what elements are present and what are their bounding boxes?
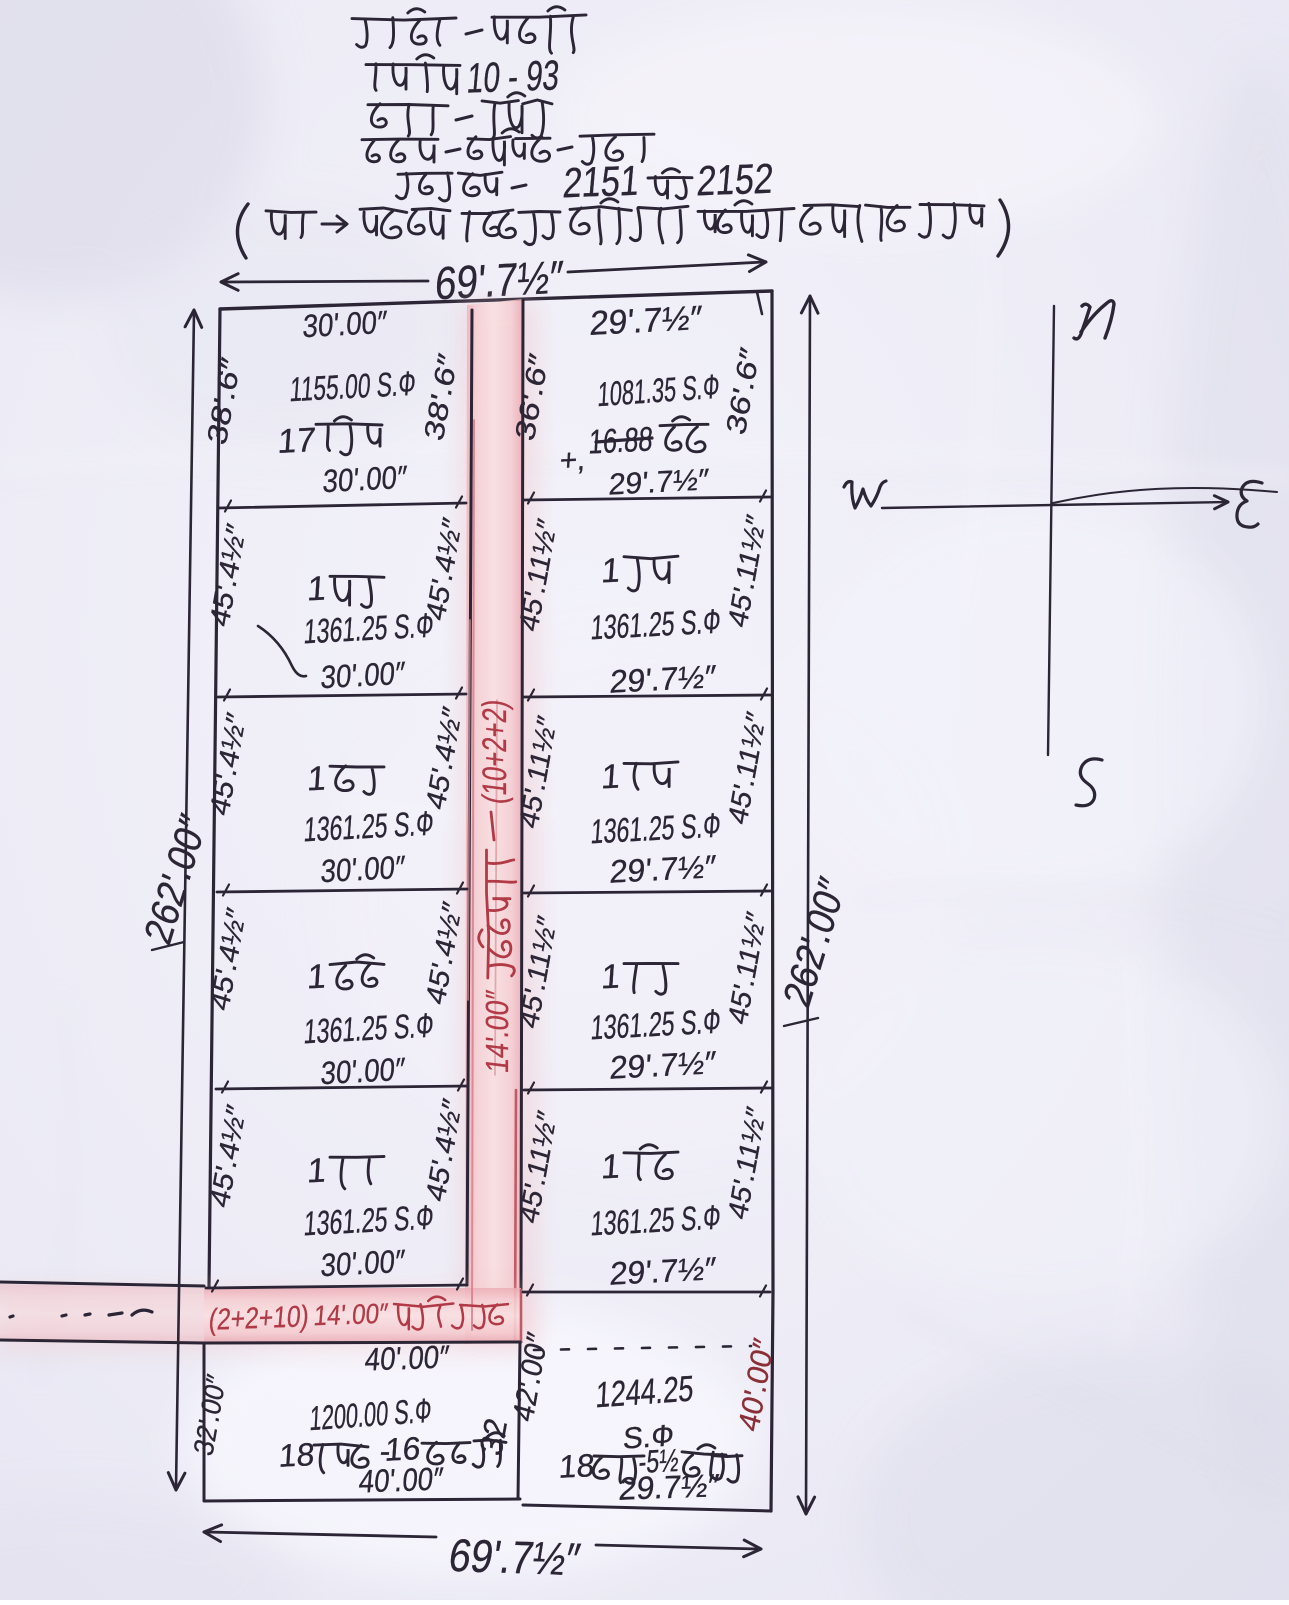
svg-text:29'.7½″: 29'.7½″ <box>589 299 704 343</box>
svg-text:1361.25 S.Ф: 1361.25 S.Ф <box>303 805 435 850</box>
svg-text:1: 1 <box>306 957 328 996</box>
svg-text:1361.25 S.Ф: 1361.25 S.Ф <box>590 603 722 648</box>
svg-text:30'.00″: 30'.00″ <box>320 1051 406 1091</box>
svg-text:40'.00″: 40'.00″ <box>363 1339 450 1378</box>
svg-text:40'.00″: 40'.00″ <box>357 1461 444 1500</box>
svg-text:(10+2+2): (10+2+2) <box>476 697 514 806</box>
svg-text:1: 1 <box>600 757 622 796</box>
svg-text:29'.7½″: 29'.7½″ <box>608 463 711 501</box>
svg-text:30'.00″: 30'.00″ <box>320 1243 406 1283</box>
svg-text:1: 1 <box>600 551 622 590</box>
svg-text:1: 1 <box>600 957 622 996</box>
svg-text:2152: 2152 <box>695 155 775 205</box>
svg-text:30'.00″: 30'.00″ <box>322 459 408 499</box>
svg-text:29'.7½″: 29'.7½″ <box>609 848 717 890</box>
svg-text:1361.25 S.Ф: 1361.25 S.Ф <box>590 1003 722 1048</box>
svg-text:1: 1 <box>306 1151 328 1190</box>
svg-text:29.7½″: 29.7½″ <box>617 1467 720 1506</box>
svg-text:+,: +, <box>559 443 587 477</box>
svg-text:30'.00″: 30'.00″ <box>320 849 406 889</box>
svg-text:1361.25 S.Ф: 1361.25 S.Ф <box>303 1199 435 1244</box>
svg-text:30'.00″: 30'.00″ <box>302 304 388 344</box>
svg-text:29'.7½″: 29'.7½″ <box>609 1044 717 1086</box>
svg-text:29'.7½″: 29'.7½″ <box>609 658 717 700</box>
svg-text:1361.25 S.Ф: 1361.25 S.Ф <box>590 1199 722 1244</box>
svg-text:17: 17 <box>277 421 317 461</box>
svg-text:1: 1 <box>306 569 328 608</box>
svg-text:1361.25 S.Ф: 1361.25 S.Ф <box>303 1007 435 1052</box>
svg-text:30'.00″: 30'.00″ <box>320 655 406 695</box>
svg-text:14'.00″: 14'.00″ <box>312 1298 389 1332</box>
svg-text:14'.00″: 14'.00″ <box>479 988 515 1074</box>
svg-text:(2+2+10): (2+2+10) <box>207 1300 310 1336</box>
svg-text:1: 1 <box>600 1147 622 1186</box>
svg-text:2151: 2151 <box>561 157 641 207</box>
svg-text:18: 18 <box>558 1447 596 1485</box>
svg-text:1361.25 S.Ф: 1361.25 S.Ф <box>303 607 435 652</box>
svg-text:1361.25 S.Ф: 1361.25 S.Ф <box>590 807 722 852</box>
svg-text:18: 18 <box>278 1436 316 1474</box>
svg-text:29'.7½″: 29'.7½″ <box>609 1250 717 1292</box>
svg-text:1155.00 S.Ф: 1155.00 S.Ф <box>289 365 417 410</box>
svg-text:1: 1 <box>306 759 328 798</box>
svg-text:69'.7½″: 69'.7½″ <box>445 1529 583 1585</box>
svg-text:1244.25: 1244.25 <box>595 1368 695 1416</box>
